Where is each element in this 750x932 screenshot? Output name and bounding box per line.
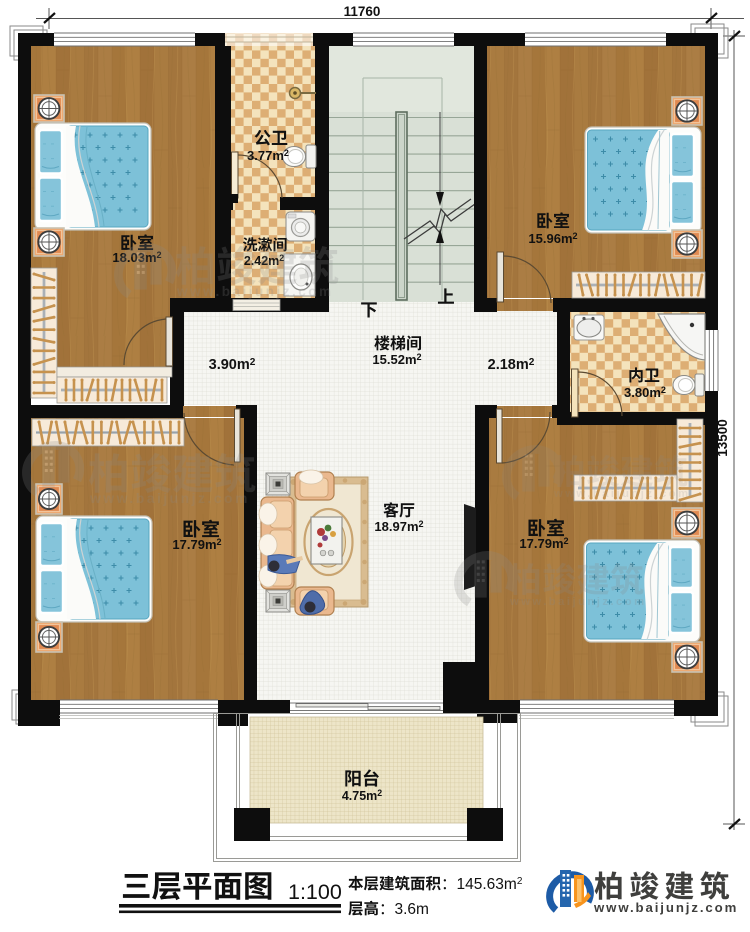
svg-text:www.baijunjz.com: www.baijunjz.com (593, 900, 738, 915)
svg-text:www.baijunjz.com: www.baijunjz.com (89, 490, 250, 506)
svg-text:www.baijunjz.com: www.baijunjz.com (509, 596, 647, 608)
svg-text:15.96m2: 15.96m2 (528, 231, 577, 246)
svg-text:17.79m2: 17.79m2 (172, 537, 221, 552)
svg-text:：145.63m2: ：145.63m2 (441, 876, 523, 893)
svg-text:4.75m2: 4.75m2 (342, 788, 382, 803)
svg-text:15.52m2: 15.52m2 (372, 352, 421, 367)
svg-text:1:100: 1:100 (288, 880, 342, 904)
svg-text:18.97m2: 18.97m2 (374, 519, 423, 534)
svg-text:www.baijunjz.com: www.baijunjz.com (553, 488, 691, 500)
svg-text:2.18m2: 2.18m2 (488, 357, 535, 373)
svg-text:3.80m2: 3.80m2 (624, 385, 666, 400)
svg-text:：3.6m: ：3.6m (379, 901, 429, 918)
svg-text:www.baijunjz.com: www.baijunjz.com (176, 284, 334, 299)
svg-text:11760: 11760 (344, 4, 381, 19)
svg-text:3.77m2: 3.77m2 (247, 148, 289, 163)
svg-text:17.79m2: 17.79m2 (519, 536, 568, 551)
svg-text:3.90m2: 3.90m2 (209, 357, 256, 373)
